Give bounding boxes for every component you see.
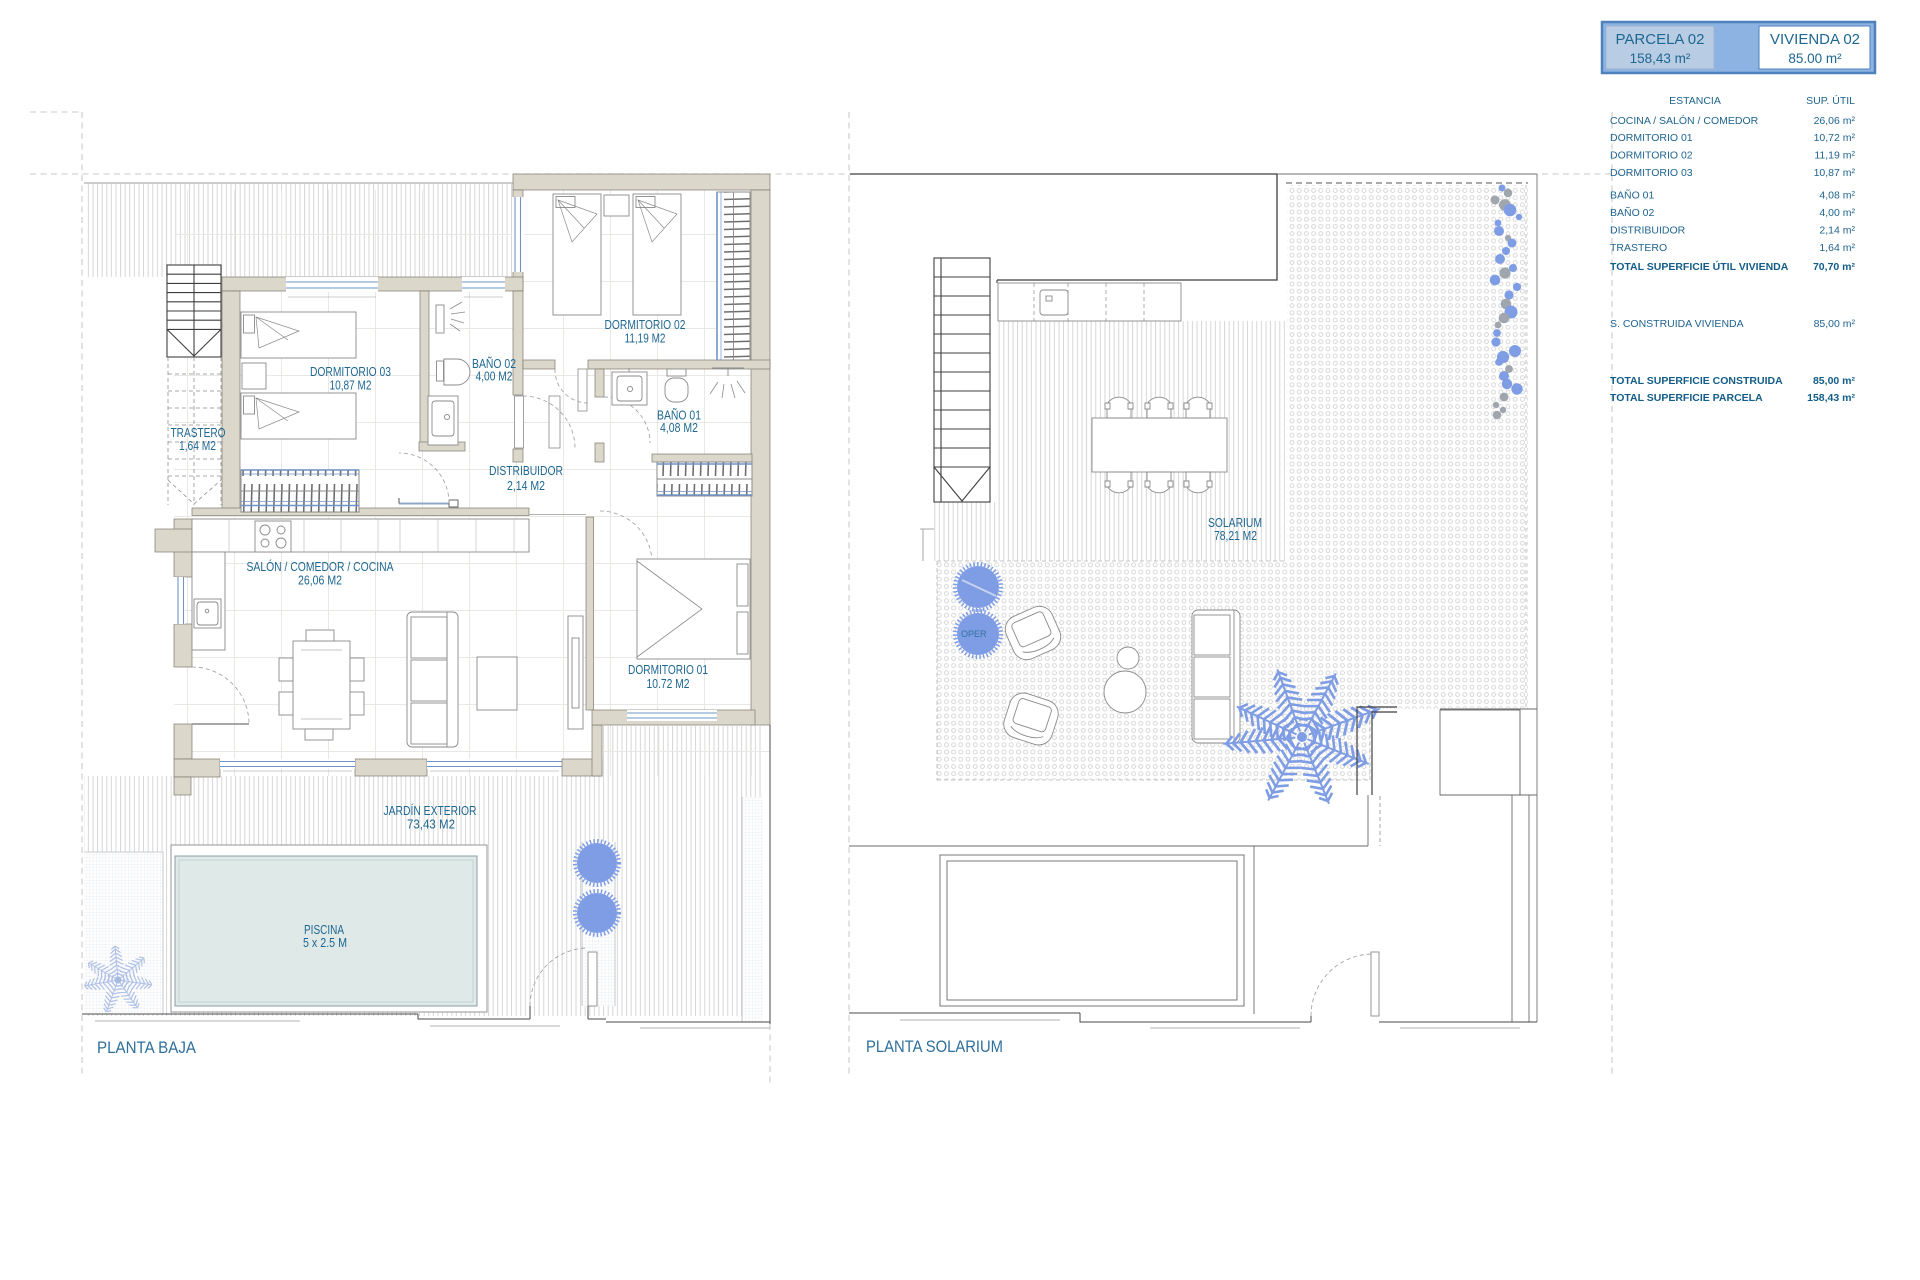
- svg-text:S. CONSTRUIDA VIVIENDA: S. CONSTRUIDA VIVIENDA: [1610, 318, 1744, 330]
- svg-text:5 x 2.5 M: 5 x 2.5 M: [303, 935, 347, 950]
- svg-text:2,14 M2: 2,14 M2: [507, 478, 545, 493]
- svg-text:11,19 M2: 11,19 M2: [625, 331, 666, 346]
- svg-text:DORMITORIO 01: DORMITORIO 01: [1610, 132, 1693, 144]
- svg-text:26,06 m²: 26,06 m²: [1814, 115, 1856, 127]
- svg-text:OPER: OPER: [961, 629, 987, 639]
- svg-text:DORMITORIO 02: DORMITORIO 02: [1610, 150, 1693, 162]
- svg-text:DORMITORIO 03: DORMITORIO 03: [1610, 167, 1693, 179]
- svg-text:85.00 m²: 85.00 m²: [1788, 51, 1842, 66]
- svg-text:10,87 M2: 10,87 M2: [330, 378, 372, 393]
- svg-text:PLANTA BAJA: PLANTA BAJA: [97, 1039, 196, 1057]
- svg-text:11,19 m²: 11,19 m²: [1814, 150, 1855, 162]
- svg-text:PARCELA 02: PARCELA 02: [1616, 31, 1705, 48]
- svg-text:DISTRIBUIDOR: DISTRIBUIDOR: [489, 463, 563, 478]
- svg-text:26,06 M2: 26,06 M2: [298, 573, 342, 588]
- svg-text:TOTAL SUPERFICIE ÚTIL VIVIENDA: TOTAL SUPERFICIE ÚTIL VIVIENDA: [1610, 260, 1789, 273]
- svg-text:1,64 M2: 1,64 M2: [179, 438, 216, 453]
- svg-text:BAÑO 01: BAÑO 01: [1610, 189, 1655, 202]
- svg-text:BAÑO 02: BAÑO 02: [1610, 206, 1655, 219]
- svg-text:ESTANCIA: ESTANCIA: [1669, 95, 1721, 107]
- svg-text:TRASTERO: TRASTERO: [1610, 242, 1667, 254]
- svg-text:DISTRIBUIDOR: DISTRIBUIDOR: [1610, 225, 1686, 237]
- svg-text:DORMITORIO 01: DORMITORIO 01: [628, 662, 708, 677]
- svg-text:1,64 m²: 1,64 m²: [1819, 242, 1855, 254]
- svg-text:78,21 M2: 78,21 M2: [1214, 528, 1257, 543]
- svg-text:TOTAL SUPERFICIE CONSTRUIDA: TOTAL SUPERFICIE CONSTRUIDA: [1610, 375, 1783, 387]
- svg-text:COCINA / SALÓN / COMEDOR: COCINA / SALÓN / COMEDOR: [1610, 114, 1759, 127]
- svg-text:10,87 m²: 10,87 m²: [1814, 167, 1856, 179]
- svg-text:158,43 m²: 158,43 m²: [1630, 51, 1691, 66]
- svg-text:SUP. ÚTIL: SUP. ÚTIL: [1806, 94, 1855, 107]
- svg-text:4,08 M2: 4,08 M2: [660, 420, 698, 435]
- svg-text:85,00 m²: 85,00 m²: [1813, 375, 1856, 387]
- svg-text:4,08 m²: 4,08 m²: [1819, 190, 1855, 202]
- svg-text:73,43 M2: 73,43 M2: [407, 817, 455, 832]
- svg-text:10,72 m²: 10,72 m²: [1814, 132, 1856, 144]
- svg-text:TOTAL SUPERFICIE PARCELA: TOTAL SUPERFICIE PARCELA: [1610, 392, 1763, 404]
- svg-text:VIVIENDA 02: VIVIENDA 02: [1770, 31, 1860, 48]
- svg-text:PLANTA SOLARIUM: PLANTA SOLARIUM: [866, 1038, 1003, 1056]
- svg-text:158,43 m²: 158,43 m²: [1807, 392, 1855, 404]
- svg-text:4,00 M2: 4,00 M2: [476, 369, 513, 384]
- svg-text:10.72 M2: 10.72 M2: [647, 676, 690, 691]
- svg-text:2,14 m²: 2,14 m²: [1819, 225, 1855, 237]
- svg-text:70,70 m²: 70,70 m²: [1813, 261, 1856, 273]
- svg-text:85,00 m²: 85,00 m²: [1814, 318, 1856, 330]
- svg-text:4,00 m²: 4,00 m²: [1819, 207, 1855, 219]
